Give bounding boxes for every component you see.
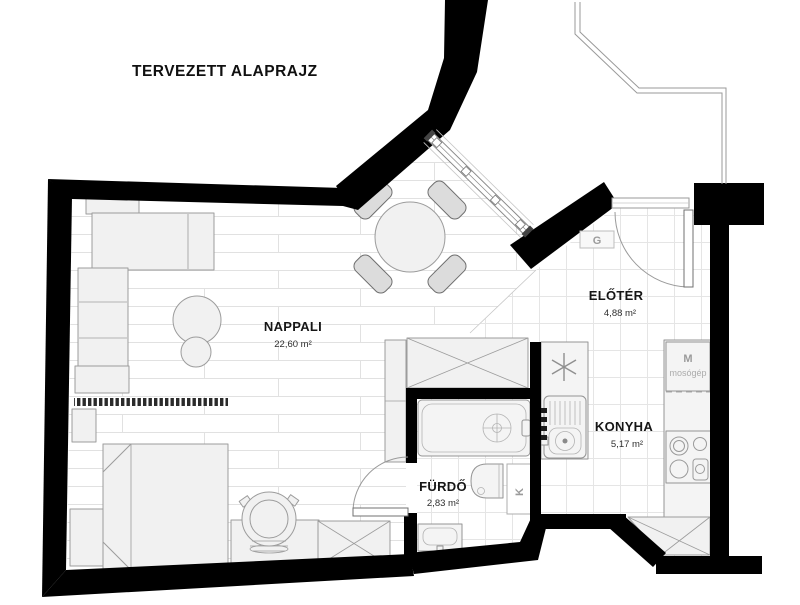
- washing-machine-letter: M: [683, 353, 692, 365]
- floorplan-canvas: TERVEZETT ALAPRAJZ NAPPALI 22,60 m² ELŐT…: [0, 0, 800, 605]
- wall-bottom-right-band: [656, 556, 762, 574]
- flue-label: K: [514, 488, 526, 496]
- nightstand: [70, 509, 103, 566]
- plan-title: TERVEZETT ALAPRAJZ: [132, 63, 318, 80]
- closet-x: [407, 338, 528, 388]
- wall-right: [710, 225, 729, 573]
- wall-bath-right: [530, 342, 541, 522]
- wall-kitchen-bottom: [534, 514, 626, 529]
- wall-entry-block: [694, 183, 764, 225]
- svg-text:FÜRDŐ: FÜRDŐ: [419, 479, 467, 494]
- svg-text:NAPPALI: NAPPALI: [264, 319, 322, 334]
- svg-text:ELŐTÉR: ELŐTÉR: [589, 288, 644, 303]
- svg-text:5,17 m²: 5,17 m²: [611, 439, 643, 450]
- terrace-outline: [575, 2, 722, 184]
- bed: [103, 444, 228, 570]
- washing-machine-label: mosógép: [669, 368, 706, 378]
- bathroom-door-leaf: [353, 508, 408, 516]
- gas-meter-label: G: [593, 235, 602, 247]
- dining-table: [375, 202, 445, 272]
- side-table-small: [181, 337, 211, 367]
- room-divider-strip: [74, 398, 228, 406]
- wall-bath-left-upper: [406, 388, 417, 463]
- svg-text:22,60 m²: 22,60 m²: [274, 339, 312, 350]
- entrance-door-leaf: [684, 210, 693, 287]
- kitchen-sink: [541, 396, 586, 458]
- svg-text:2,83 m²: 2,83 m²: [427, 498, 459, 509]
- washing-machine: [666, 342, 710, 392]
- svg-text:KONYHA: KONYHA: [595, 419, 653, 434]
- toilet: [471, 464, 503, 498]
- wall-bath-left-stub: [404, 513, 417, 557]
- nightstand: [72, 409, 96, 442]
- floorplan-page: TERVEZETT ALAPRAJZ NAPPALI 22,60 m² ELŐT…: [0, 0, 800, 605]
- svg-text:4,88 m²: 4,88 m²: [604, 308, 636, 319]
- wall-bath-top: [406, 388, 534, 399]
- cooktop: [666, 431, 711, 483]
- bathtub: [418, 400, 530, 456]
